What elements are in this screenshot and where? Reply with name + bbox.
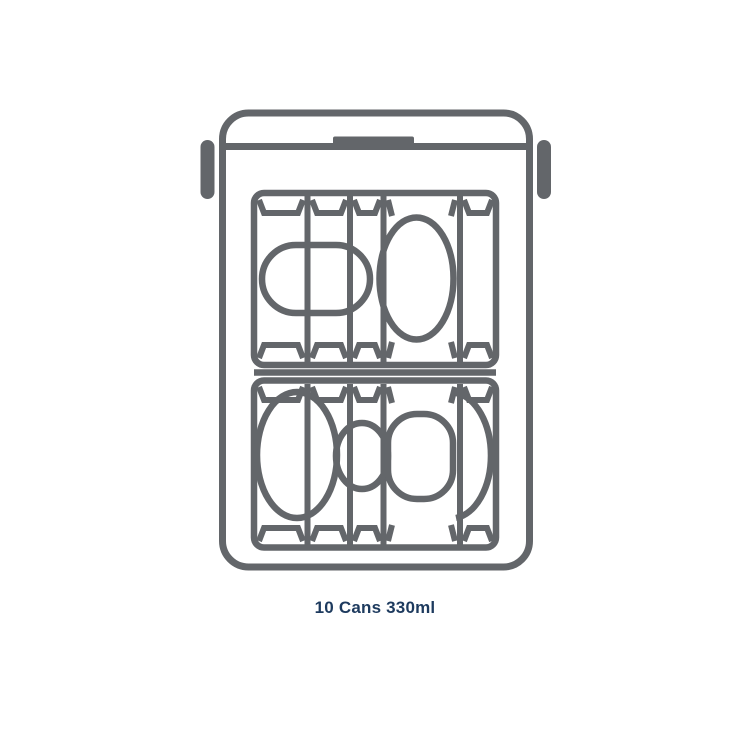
right-handle-icon [537, 140, 551, 199]
can-oval-bottom-right-icon [388, 414, 453, 499]
cooler-top-view-icon [0, 0, 750, 750]
capacity-caption: 10 Cans 330ml [0, 598, 750, 618]
product-illustration-page: 10 Cans 330ml [0, 0, 750, 750]
can-row-top [254, 193, 496, 365]
can-oval-top-row-icon [380, 218, 454, 340]
can-capsule-top-row-icon [262, 245, 370, 313]
can-circle-bottom-center-icon [336, 423, 388, 489]
lid-latch-icon [333, 137, 414, 150]
left-handle-icon [201, 140, 215, 199]
can-oval-bottom-left-icon [257, 392, 337, 518]
can-row-bottom [254, 381, 496, 548]
